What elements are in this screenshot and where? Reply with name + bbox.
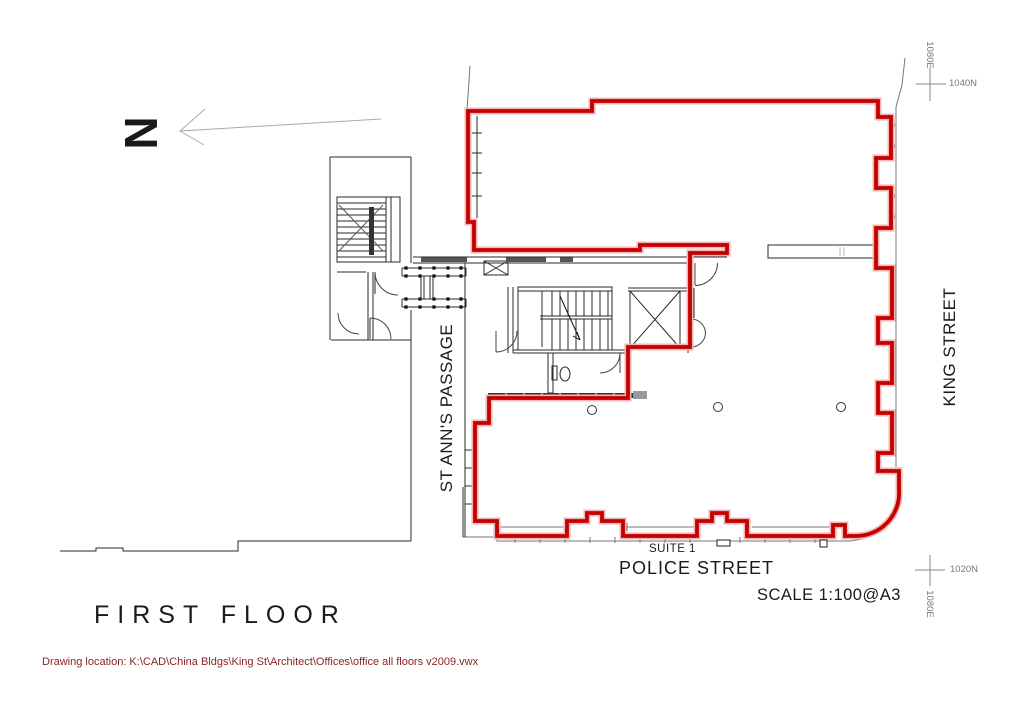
survey-label-1080e-top: 1080E bbox=[923, 37, 935, 73]
north-label: N bbox=[116, 108, 166, 158]
demise-line bbox=[468, 101, 899, 536]
floor-title: FIRST FLOOR bbox=[94, 601, 347, 630]
demise-halo bbox=[468, 101, 899, 536]
survey-label-1020n: 1020N bbox=[950, 564, 978, 575]
king-street-bar bbox=[768, 245, 877, 258]
footbridges bbox=[402, 268, 466, 307]
neighbor-building-outline bbox=[60, 157, 411, 551]
street-label-king-street: KING STREET bbox=[941, 277, 959, 417]
scale-label: SCALE 1:100@A3 bbox=[757, 586, 901, 605]
survey-label-1080e-bottom: 1080E bbox=[923, 586, 935, 622]
floor-plan-canvas: N ST ANN'S PASSAGE KING STREET SUITE 1 P… bbox=[0, 0, 1024, 724]
street-label-police-street: POLICE STREET bbox=[619, 558, 774, 579]
central-stair-core bbox=[508, 287, 691, 353]
facade-window-marks bbox=[717, 125, 893, 547]
columns bbox=[588, 403, 846, 415]
suite-label: SUITE 1 bbox=[649, 543, 696, 555]
demise-outline bbox=[468, 101, 899, 536]
door-swings bbox=[496, 263, 718, 373]
street-kerb-lines bbox=[463, 58, 905, 543]
north-arrow-icon bbox=[180, 109, 381, 145]
drawing-location-note: Drawing location: K:\CAD\China Bldgs\Kin… bbox=[42, 656, 478, 668]
lift-shaft bbox=[630, 291, 680, 348]
survey-label-1040n: 1040N bbox=[949, 78, 977, 89]
upper-room-walls bbox=[413, 116, 727, 263]
window-sill-lines bbox=[500, 523, 830, 531]
street-label-st-anns-passage: ST ANN'S PASSAGE bbox=[438, 308, 456, 508]
north-stair-block bbox=[337, 197, 400, 340]
wc-fixture bbox=[548, 353, 570, 393]
